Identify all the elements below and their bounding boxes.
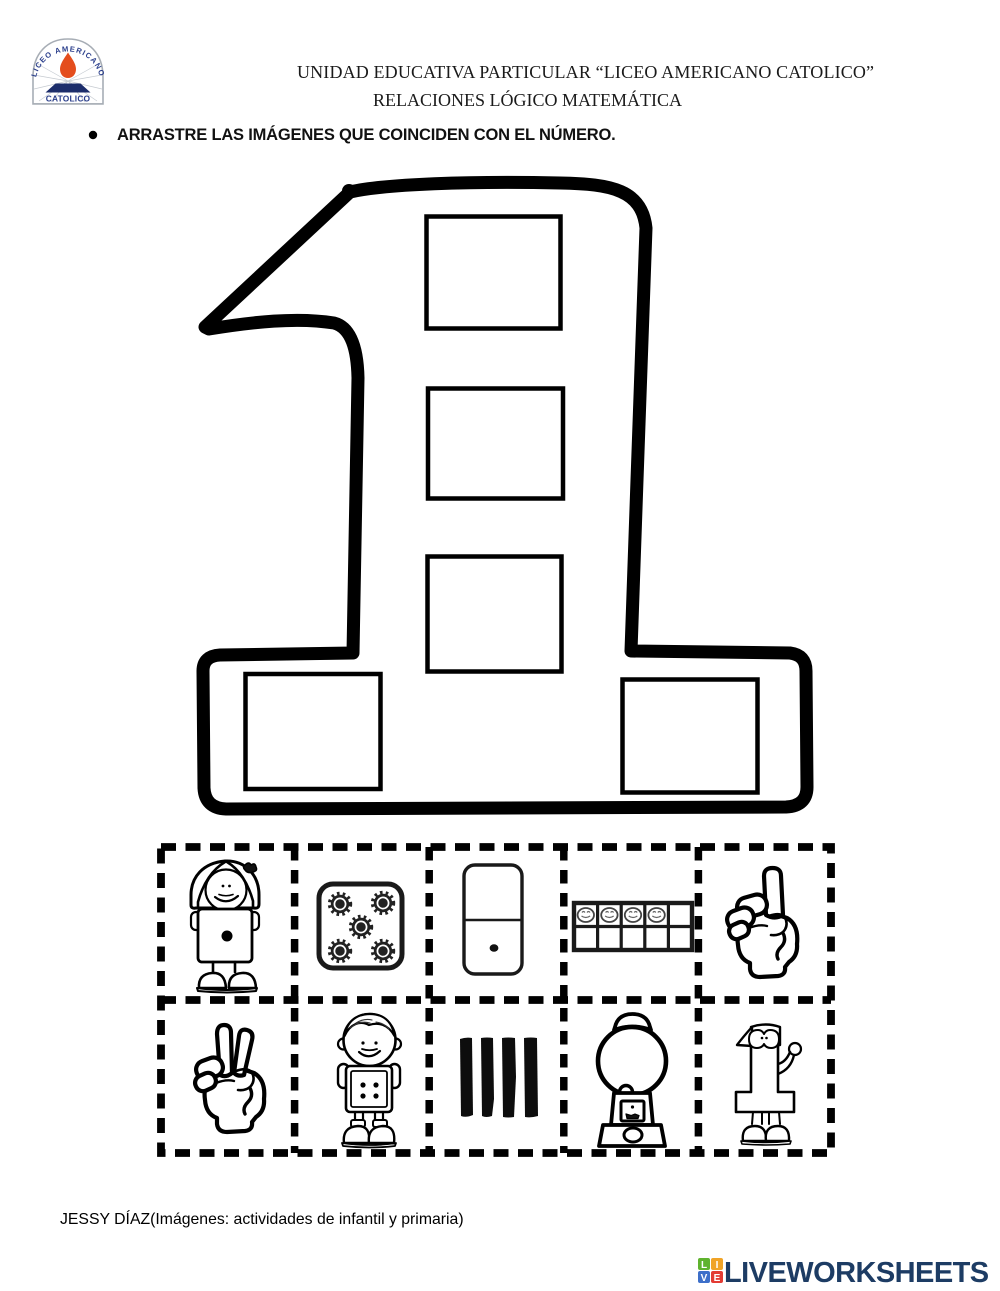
svg-text:LIVEWORKSHEETS: LIVEWORKSHEETS: [724, 1257, 989, 1287]
svg-text:E: E: [714, 1273, 721, 1284]
svg-text:V: V: [701, 1273, 708, 1284]
svg-text:L: L: [701, 1260, 707, 1271]
svg-text:I: I: [716, 1260, 719, 1271]
